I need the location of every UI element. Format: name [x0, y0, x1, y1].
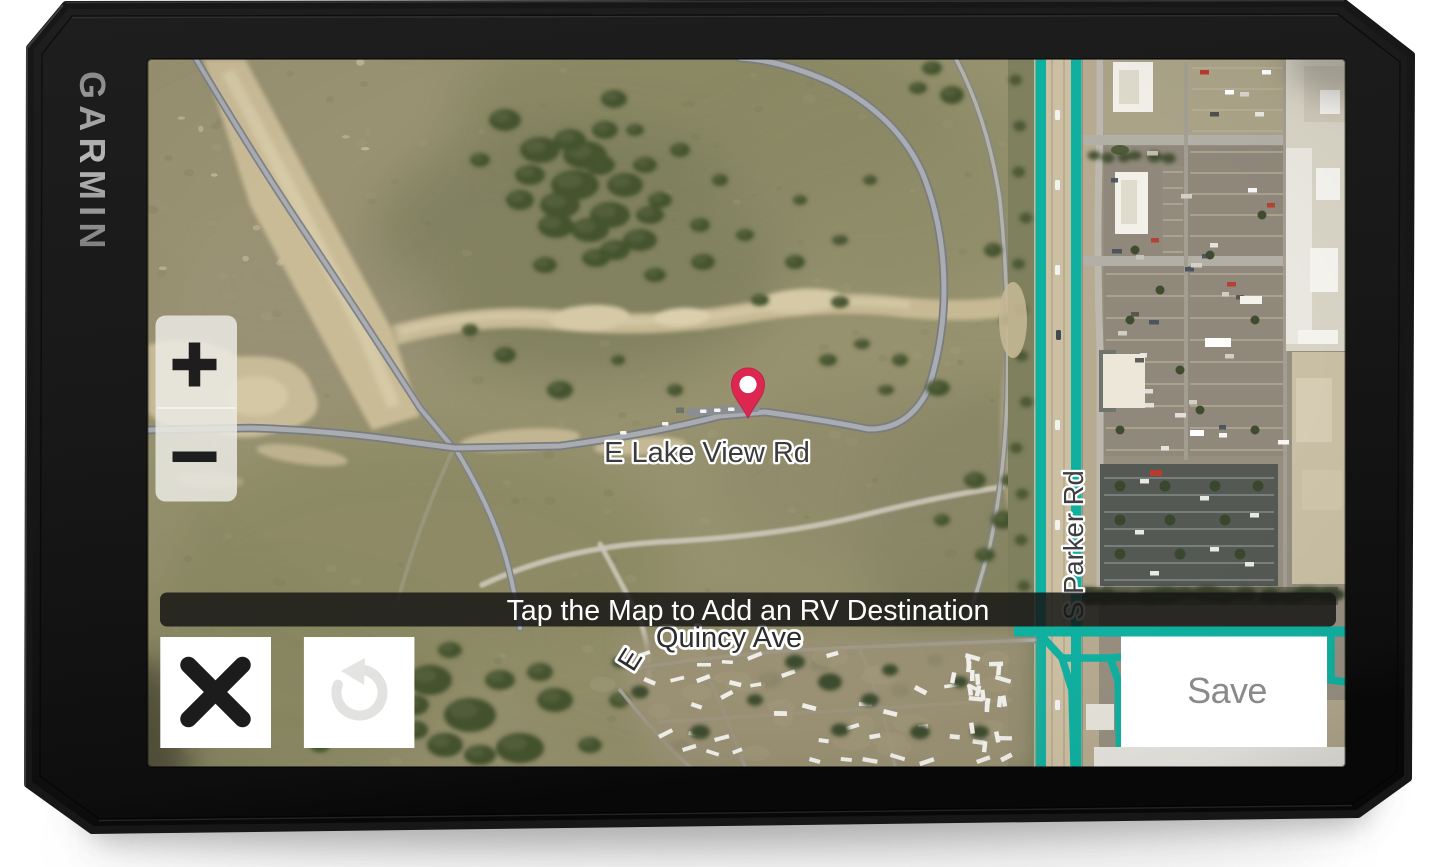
svg-text:Save: Save	[1187, 670, 1267, 711]
svg-text:GARMIN: GARMIN	[72, 71, 113, 255]
svg-text:Tap the Map to Add an RV Desti: Tap the Map to Add an RV Destination	[507, 595, 990, 627]
